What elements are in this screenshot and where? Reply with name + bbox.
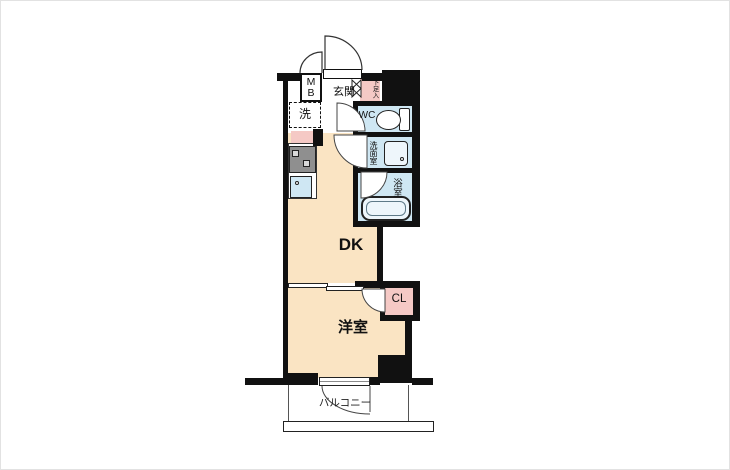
wall [353, 221, 420, 227]
balcony-rail [408, 385, 409, 422]
label-bathroom: 浴室 [387, 174, 401, 200]
wall [277, 73, 300, 81]
burner [292, 150, 299, 157]
wall [313, 129, 323, 146]
burner [303, 160, 310, 167]
faucet-dot [295, 181, 299, 185]
bathtub-inner [366, 201, 406, 216]
lower-ledge [283, 421, 434, 432]
wall [357, 168, 412, 173]
label-closet: CL [386, 293, 412, 305]
label-washroom: 洗面室 [363, 137, 377, 168]
entrance-door-arc [325, 36, 362, 70]
entrance-door-slab [323, 69, 362, 79]
label-bedroom: 洋室 [325, 320, 381, 336]
toilet-bowl [376, 110, 401, 130]
label-wc: WC [356, 111, 378, 122]
balcony-side-wall [245, 378, 288, 385]
wall [412, 70, 420, 227]
wall [380, 315, 420, 321]
faucet-dot [400, 157, 404, 161]
balcony-rail [288, 385, 289, 422]
wall [353, 101, 415, 106]
floorplan-canvas: M B 洗 玄関 下足入 [0, 0, 730, 470]
meter-box: M B [300, 73, 322, 102]
sliding-door-leaf [326, 286, 364, 291]
bathtub [361, 196, 411, 221]
label-shoe-box: 下足入 [363, 78, 377, 100]
wall [405, 321, 412, 357]
wall [288, 373, 318, 385]
wall [380, 288, 385, 315]
meter-box-door-arc [300, 52, 322, 73]
stove [289, 146, 316, 173]
label-balcony: バルコニー [305, 398, 385, 409]
washroom-sink [384, 141, 408, 166]
kitchen-sink [290, 176, 312, 198]
balcony-window [319, 377, 370, 386]
wall [283, 81, 288, 385]
label-laundry: 洗 [290, 108, 320, 121]
wall [377, 227, 383, 283]
wall [378, 355, 412, 383]
label-genkan: 玄関 [326, 87, 362, 99]
label-dk: DK [328, 236, 374, 254]
label-mb: M B [302, 77, 320, 99]
sliding-door-leaf [288, 283, 328, 288]
laundry-space: 洗 [289, 102, 321, 128]
balcony-side-wall [412, 378, 433, 385]
